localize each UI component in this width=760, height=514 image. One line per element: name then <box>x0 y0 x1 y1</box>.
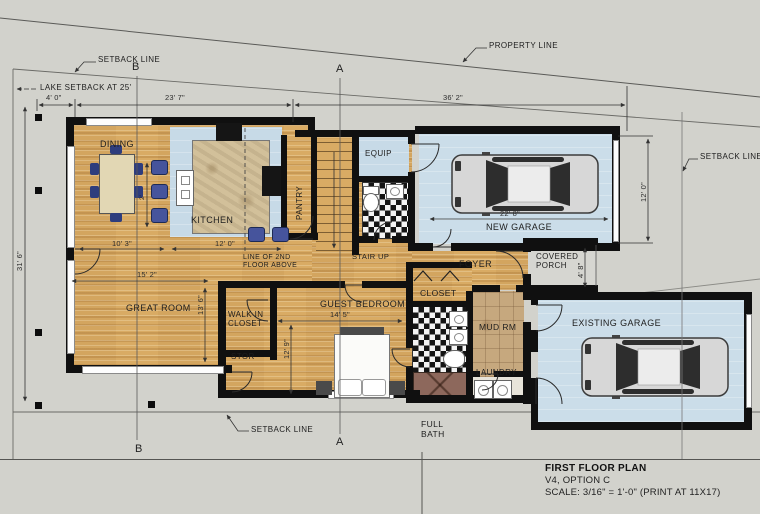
half-bath-sink <box>386 184 404 199</box>
bed-bench <box>340 327 384 335</box>
wall-bath-left-b <box>406 366 413 397</box>
floor-plan-canvas: SETBACK LINE PROPERTY LINE LAKE SETBACK … <box>0 0 760 514</box>
wall-half-bath-bottom-b <box>392 236 408 243</box>
range <box>216 123 242 141</box>
wall-porch-top <box>528 238 598 245</box>
title-block: FIRST FLOOR PLAN V4, OPTION C SCALE: 3/1… <box>545 463 721 498</box>
room-label-stor: STOR <box>231 353 255 362</box>
dining-chair <box>90 186 99 198</box>
room-label-kitchen: KITCHEN <box>191 215 233 225</box>
wall-stair-left <box>311 133 317 240</box>
deck-post <box>35 329 42 336</box>
bath-sink <box>449 311 468 327</box>
drawing-version: V4, OPTION C <box>545 475 721 486</box>
wall-closet-bottom <box>406 301 472 307</box>
wall-garage-left-a <box>408 130 415 144</box>
wall-mud-top-b <box>516 285 531 292</box>
new-garage-door <box>613 140 619 242</box>
dim-12-0-garage: 12' 0" <box>640 182 648 202</box>
bar-stool <box>151 160 168 175</box>
setback-line-label-top: SETBACK LINE <box>98 56 160 65</box>
toilet <box>363 193 379 212</box>
washer <box>474 380 493 399</box>
deck-post <box>35 402 42 409</box>
dining-chair <box>110 213 122 222</box>
dim-23-7: 23' 7" <box>165 94 185 102</box>
pillow <box>338 379 362 396</box>
wall-bath-laundry-bottom <box>406 395 531 403</box>
kitchen-sink-counter <box>176 170 194 206</box>
dim-14-5: 14' 5" <box>330 311 350 319</box>
dim-2: 2' <box>139 195 146 200</box>
dim-36-2: 36' 2" <box>443 94 463 102</box>
existing-garage-door <box>746 314 752 408</box>
section-marker-b-top: B <box>132 61 140 73</box>
deck-post <box>35 114 42 121</box>
bar-stool <box>272 227 289 242</box>
wall-porch-bottom <box>528 285 598 292</box>
dining-table <box>99 154 135 214</box>
room-label-pantry: PANTRY <box>296 186 305 220</box>
wall-bedroom-top-a <box>218 281 345 288</box>
dryer <box>493 380 512 399</box>
wall-pantry-left <box>281 135 287 238</box>
room-label-great-room: GREAT ROOM <box>126 303 191 313</box>
bar-stool <box>151 184 168 199</box>
window-great-room <box>82 366 224 374</box>
setback-line-label-right: SETBACK LINE <box>700 153 760 162</box>
deck-post <box>148 401 155 408</box>
room-label-full-bath: FULL BATH <box>421 420 455 439</box>
room-label-walk-in-closet: WALK IN CLOSET <box>228 311 278 329</box>
dim-22-8: 22' 8" <box>500 210 520 218</box>
wall-exgarage-left-a <box>531 292 538 305</box>
room-label-foyer: FOYER <box>459 259 492 269</box>
dim-12-0-kitchen: 12' 0" <box>215 240 235 248</box>
dining-chair <box>90 163 99 175</box>
drawing-title: FIRST FLOOR PLAN <box>545 463 721 474</box>
stair-treads <box>316 139 353 251</box>
bar-stool <box>248 227 265 242</box>
room-label-dining: DINING <box>100 139 134 149</box>
section-marker-a-bottom: A <box>336 436 344 448</box>
window-left-2 <box>67 260 75 354</box>
nightstand <box>389 381 405 395</box>
dim-12-9: 12' 9" <box>283 339 291 359</box>
wall-mud-top-a <box>472 285 500 292</box>
property-line-label: PROPERTY LINE <box>489 42 558 51</box>
mud-room-floor <box>471 291 524 377</box>
second-floor-note: LINE OF 2ND FLOOR ABOVE <box>243 254 315 270</box>
room-label-new-garage: NEW GARAGE <box>486 222 552 232</box>
deck-post <box>35 187 42 194</box>
pillow <box>362 379 386 396</box>
dim-15-2: 15' 2" <box>137 271 157 279</box>
wall-exgarage-top <box>531 292 749 300</box>
bar-stool <box>151 208 168 223</box>
wall-mud-right <box>523 322 531 404</box>
dim-4-8: 4' 8" <box>577 262 585 278</box>
dining-chair <box>134 163 143 175</box>
wall-bedroom-left <box>218 281 226 397</box>
room-label-closet: CLOSET <box>420 289 456 299</box>
wall-equip-bath <box>356 176 408 182</box>
wall-half-bath-bottom-a <box>356 236 378 243</box>
nightstand <box>316 381 332 395</box>
bath-sink <box>449 329 468 345</box>
dim-31-6: 31' 6" <box>16 251 24 271</box>
wall-exgarage-bottom <box>531 422 752 430</box>
room-label-guest-bedroom: GUEST BEDROOM <box>320 299 405 309</box>
section-marker-b-bottom: B <box>135 443 143 455</box>
wall-foyer-right-a <box>523 238 531 252</box>
lake-setback-label: LAKE SETBACK AT 25' <box>40 84 132 93</box>
room-label-existing-garage: EXISTING GARAGE <box>572 318 661 328</box>
window-top <box>86 118 152 126</box>
room-label-laundry: LAUNDRY <box>476 369 517 378</box>
wall-bedroom-top-b <box>362 281 412 288</box>
dim-4-0: 4' 0" <box>46 94 62 102</box>
section-marker-a-top: A <box>336 63 344 75</box>
room-label-mud-rm: MUD RM <box>479 323 516 333</box>
dim-10-3: 10' 3" <box>112 240 132 248</box>
room-label-equip: EQUIP <box>365 150 392 159</box>
setback-line-label-bottom: SETBACK LINE <box>251 426 313 435</box>
dim-13-6: 13' 6" <box>197 295 205 315</box>
refrigerator <box>262 166 281 196</box>
drawing-scale: SCALE: 3/16" = 1'-0" (PRINT AT 11X17) <box>545 487 721 498</box>
window-left-1 <box>67 146 75 248</box>
wall-exgarage-left-b <box>531 330 538 352</box>
room-label-stair: STAIR UP <box>352 253 389 261</box>
toilet <box>443 350 465 368</box>
wall-new-garage-top <box>415 126 620 134</box>
wall-garage-left-b <box>408 172 415 251</box>
wall-new-garage-bottom-a <box>415 243 433 251</box>
